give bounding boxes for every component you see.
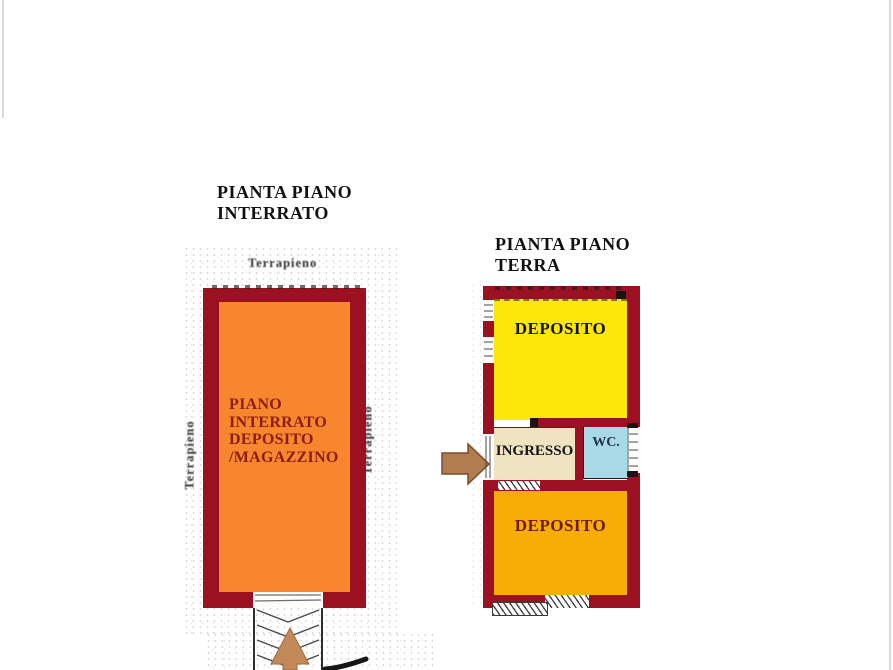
ramp-up-arrow-icon <box>271 628 309 670</box>
window-tick-marks <box>484 305 638 478</box>
ground-line-stroke <box>325 659 366 669</box>
plan-linework-overlay <box>0 0 893 670</box>
entrance-arrow-icon <box>442 444 489 484</box>
floor-plan-image: PIANTA PIANOINTERRATO Terrapieno Terrapi… <box>0 0 893 670</box>
